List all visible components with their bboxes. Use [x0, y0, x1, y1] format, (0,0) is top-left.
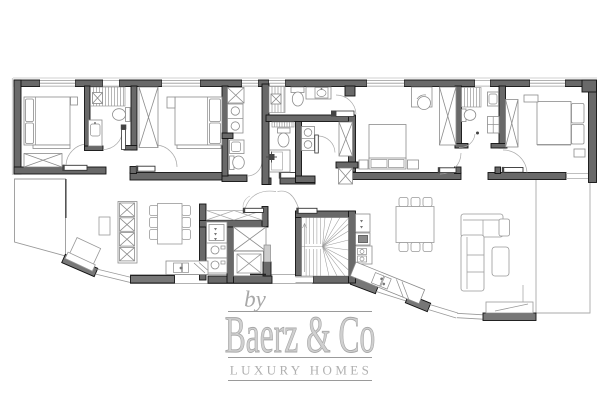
svg-text:LUXURY HOMES: LUXURY HOMES: [230, 363, 373, 378]
svg-text:Baerz & Co: Baerz & Co: [225, 306, 375, 364]
